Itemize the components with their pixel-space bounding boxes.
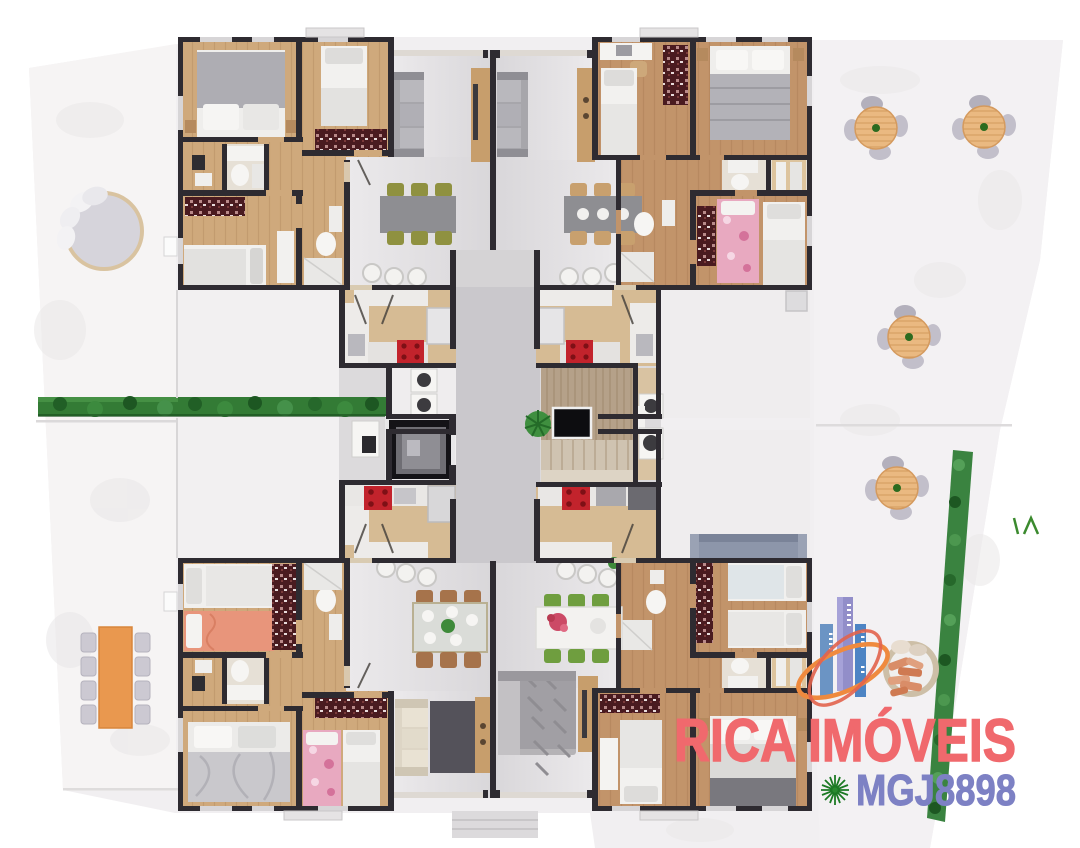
svg-text:MGJ8898: MGJ8898 bbox=[856, 766, 1016, 815]
svg-text:RICA IMÓVEIS: RICA IMÓVEIS bbox=[674, 707, 1016, 774]
